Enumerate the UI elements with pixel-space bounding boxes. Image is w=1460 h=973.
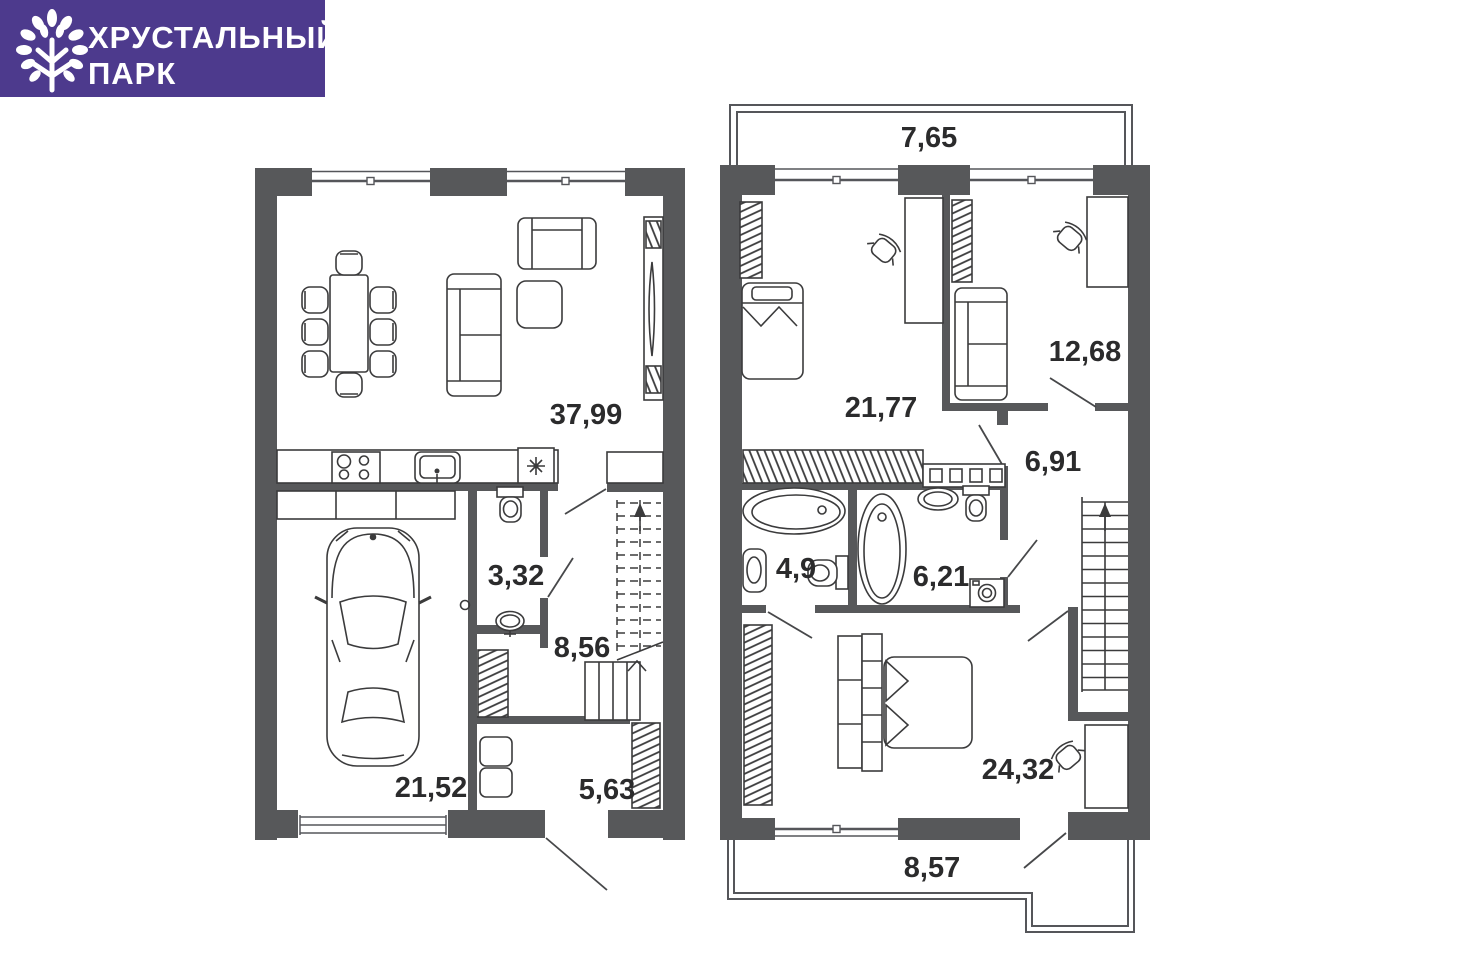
floor2-window [775,818,898,840]
stove-icon [332,452,380,483]
door-swing [979,425,1003,466]
floor2-hall-label: 6,91 [1025,446,1081,478]
desk [1085,725,1128,808]
coffee-table [517,281,562,328]
logo-title-line1: ХРУСТАЛЬНЫЙ [88,19,340,55]
floor1-window [507,168,625,196]
floor2-plan: 7,65 21,77 12,68 6,91 4,9 6,21 24,32 8,5… [720,105,1150,932]
balcony-door-swing [1024,833,1066,868]
floor1-wc-area-label: 3,32 [488,560,544,592]
floor1-wardrobe-area-label: 5,63 [579,774,635,806]
bed-icon [742,283,803,379]
stairs-up [585,500,663,720]
garage-cabinets [277,491,455,519]
floor2-window [775,165,898,195]
bathtub-icon [858,494,906,604]
garage-door [298,812,448,838]
tv-unit [644,217,663,400]
desk [1087,197,1128,287]
floor1-hall-area-label: 8,56 [554,632,610,664]
door-swing [548,558,573,597]
door-swing [768,612,812,638]
boiler-icon [518,448,554,483]
wardrobe-rack [744,625,772,805]
desk [905,198,943,323]
floor1-window [312,168,430,196]
door-swing [1028,611,1068,641]
logo-title-line2: ПАРК [88,56,176,91]
floorplan-image: ХРУСТАЛЬНЫЙ ПАРК [0,0,1460,973]
floor2-balcony-bottom-label: 8,57 [904,852,960,884]
wardrobe-rack [632,723,660,808]
door-swing [565,489,606,514]
floor2-window [970,165,1093,195]
kitchen-sink-icon [415,452,460,483]
toilet-icon [963,486,989,521]
bench-cushions [480,737,512,797]
wardrobe-shelves [838,634,882,771]
wardrobe-rack [952,200,972,282]
floorplan-page: ХРУСТАЛЬНЫЙ ПАРК [0,0,1460,973]
door-swing [1050,378,1096,407]
floor2-bedroom-right-label: 12,68 [1049,336,1122,368]
entrance-door-swing [546,838,607,890]
office-chair-icon [1051,217,1092,256]
kitchen-counter [277,448,558,483]
bed-icon [884,657,972,748]
bathroom-sink-icon [743,549,766,592]
office-chair-icon [865,229,906,268]
hall-closet [607,452,663,483]
bathroom-sink-icon [918,488,958,510]
wardrobe-rack [743,450,923,483]
stairs-down [1082,497,1128,692]
sofa-icon [447,274,501,396]
wardrobe-rack [740,202,762,278]
bathtub-icon [743,488,845,534]
floor1-garage-area-label: 21,52 [395,772,468,804]
wardrobe-rack [478,650,508,717]
floor1-living-area-label: 37,99 [550,399,623,431]
floor2-bedroom-master-label: 24,32 [982,754,1055,786]
washing-machine-icon [970,579,1004,607]
door-swing [1008,540,1037,577]
floor2-bedroom-left-label: 21,77 [845,392,918,424]
armchair-icon [518,218,596,269]
logo-badge: ХРУСТАЛЬНЫЙ ПАРК [0,0,340,97]
dining-table [330,275,368,372]
floor2-bathroom-left-label: 4,9 [776,553,816,585]
car-icon [315,528,431,766]
floor2-bathroom-right-label: 6,21 [913,561,969,593]
floor2-balcony-top-label: 7,65 [901,122,957,154]
toilet-icon [497,487,523,522]
floor1-plan: 37,99 3,32 8,56 21,52 5,63 [255,168,685,890]
sofa-icon [955,288,1007,400]
shelf-icon [923,464,1005,487]
